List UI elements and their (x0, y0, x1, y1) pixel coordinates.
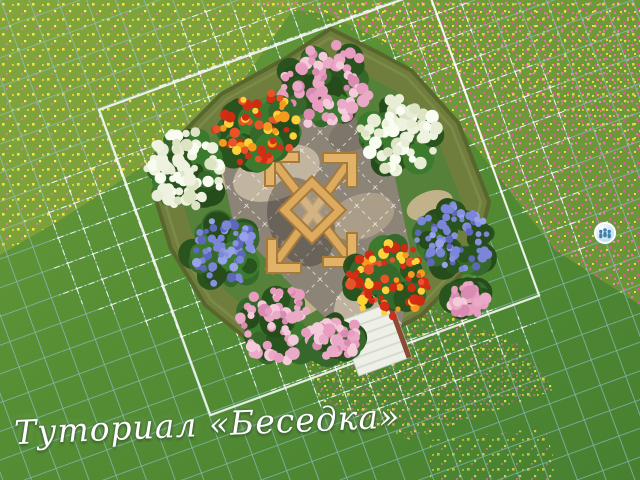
map-tag[interactable] (594, 222, 617, 245)
